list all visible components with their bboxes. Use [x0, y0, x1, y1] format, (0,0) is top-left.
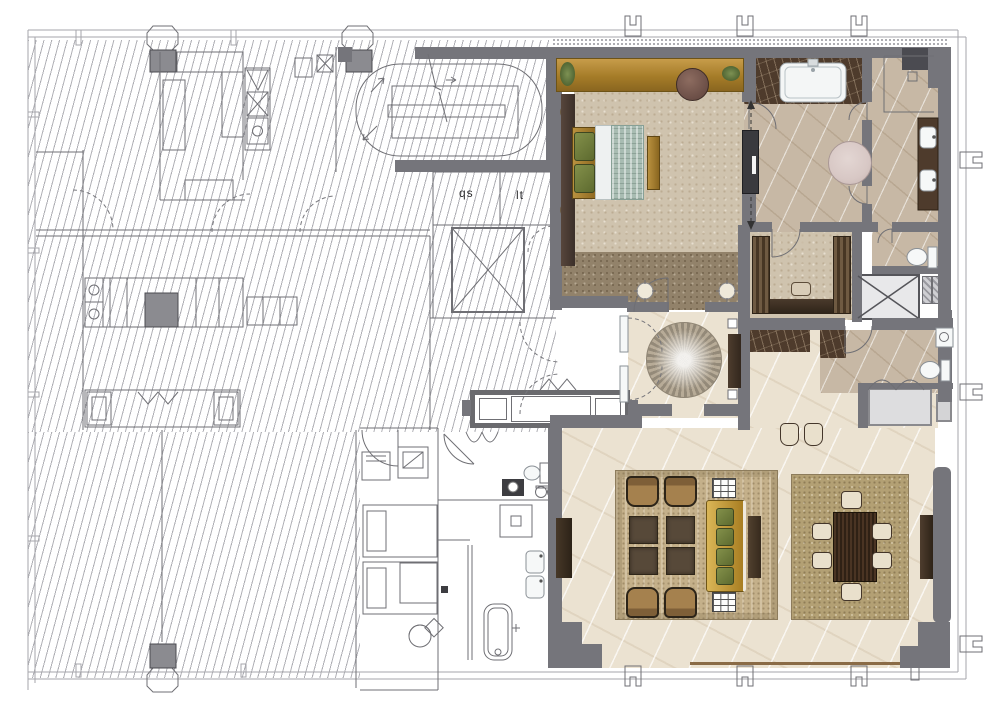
foyer-console — [728, 334, 741, 388]
plant-left — [560, 62, 575, 86]
sofa-cushion-2 — [716, 528, 734, 546]
elevator-lobby — [433, 172, 558, 318]
dining-chair-right-1 — [872, 523, 892, 540]
closet-wardrobe-left — [752, 236, 770, 314]
closet-stool — [791, 282, 811, 296]
room-label-left: qs — [459, 186, 474, 200]
ottoman-2 — [666, 516, 695, 544]
armchair-bottom-right — [664, 587, 697, 618]
bedroom-round-table — [676, 68, 709, 101]
room-label-right: lt — [516, 188, 524, 202]
bed-blanket — [611, 125, 644, 200]
armchair-top-right — [664, 476, 697, 507]
dining-chair-bottom — [841, 583, 862, 601]
cad-corridor-closets — [36, 47, 560, 688]
dining-table — [833, 512, 877, 582]
service-bedroom — [360, 428, 438, 690]
side-table-bottom — [712, 592, 736, 612]
armchair-top-left — [626, 476, 659, 507]
sofa-cushion-4 — [716, 567, 734, 585]
ottoman-4 — [666, 547, 695, 575]
closet-counter — [770, 299, 833, 314]
gallery-chair-2 — [804, 423, 823, 446]
closet-wardrobe-right — [833, 236, 851, 314]
dining-chair-top — [841, 491, 862, 509]
sofa-console — [748, 516, 761, 578]
sofa-cushion-3 — [716, 548, 734, 566]
bed-pillow-2 — [574, 164, 595, 193]
plan-linework — [0, 0, 1000, 715]
bathroom-round-rug — [828, 141, 872, 185]
ottoman-3 — [629, 547, 658, 575]
dining-chair-left-2 — [812, 552, 832, 569]
plant-right — [722, 66, 740, 81]
dining-chair-right-2 — [872, 552, 892, 569]
floor-plan: qs lt — [0, 0, 1000, 715]
back-of-house-kitchen — [160, 52, 333, 200]
dining-chair-left-1 — [812, 523, 832, 540]
tv-niche-living — [556, 518, 572, 578]
tv-screen — [752, 156, 756, 174]
ottoman-1 — [629, 516, 658, 544]
bed-pillow-1 — [574, 132, 595, 161]
bed-foot-bench — [647, 136, 660, 190]
service-bath-kitchen — [400, 432, 559, 660]
bed-mattress — [595, 125, 612, 200]
tv-partition — [742, 130, 759, 194]
gallery-chair-1 — [780, 423, 799, 446]
side-table-top — [712, 478, 736, 498]
dining-cabinet — [920, 515, 933, 579]
sofa-cushion-1 — [716, 508, 734, 526]
window-seat — [556, 58, 744, 92]
armchair-bottom-left — [626, 587, 659, 618]
